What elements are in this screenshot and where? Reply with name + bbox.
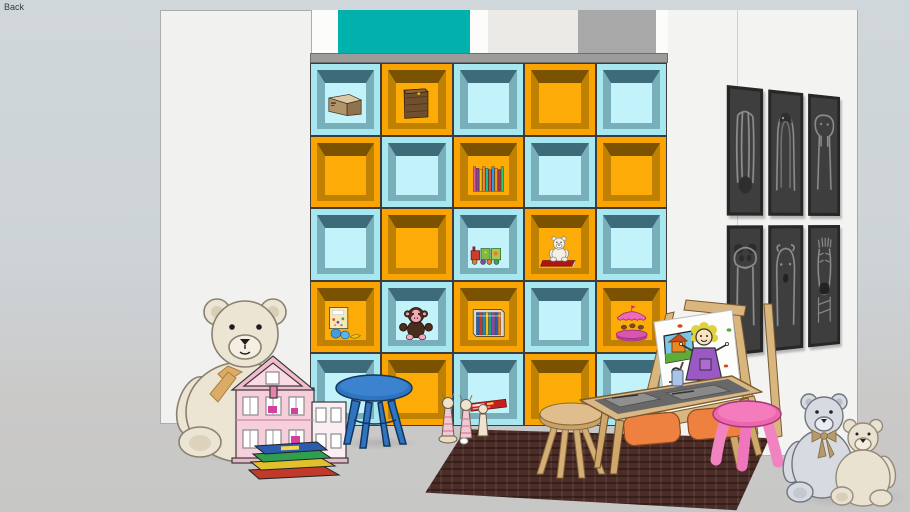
art-panel-penguin [769,89,803,215]
cubby-r3c4-orange [524,208,595,281]
cubby-opening [460,288,517,347]
toy-train [469,230,508,268]
cubby-r1c2-orange [381,63,452,136]
3d-viewport[interactable]: Back [0,0,910,512]
cardboard-box [326,85,365,123]
teal-wall-block [338,10,470,53]
lightgray-wall-block [488,10,578,53]
cubby-r1c5-cyan [596,63,667,136]
cubby-opening [388,143,445,202]
gray-wall-block [578,10,656,53]
cubby-r3c5-cyan [596,208,667,281]
art-panel-walrus [808,94,840,216]
cubby-r3c3-cyan [453,208,524,281]
book-row [469,158,508,196]
toy-pins [436,384,498,446]
cubby-opening [388,288,445,347]
cubby-opening [603,70,660,129]
cubby-r4c4-cyan [524,281,595,354]
cubby-opening [531,215,588,274]
cubby-opening [460,215,517,274]
teddy-on-book [540,230,579,268]
cubby-opening [531,70,588,129]
cubby-r2c5-orange [596,136,667,209]
cubby-opening [317,70,374,129]
wooden-crate [397,85,436,123]
art-panel-zebra [808,225,840,347]
cubby-opening [460,70,517,129]
pink-stool [708,396,786,472]
cubby-r3c2-orange [381,208,452,281]
cubby-opening [460,143,517,202]
picture-book-and-balls [326,303,365,341]
cubby-r2c3-orange [453,136,524,209]
cubby-opening [317,215,374,274]
cubby-opening [603,215,660,274]
cubby-opening [317,288,374,347]
cubby-r3c1-cyan [310,208,381,281]
cubby-opening [531,288,588,347]
book-set [469,303,508,341]
cubby-opening [388,215,445,274]
cubby-r1c1-cyan [310,63,381,136]
art-panel-giraffe [727,85,764,216]
monkey-plush [397,303,436,341]
cubby-r2c1-orange [310,136,381,209]
cubby-r4c2-cyan [381,281,452,354]
cubby-r2c4-cyan [524,136,595,209]
cubby-opening [603,143,660,202]
scene-tab-back[interactable]: Back [4,2,24,12]
cubby-r1c3-cyan [453,63,524,136]
cubby-r4c3-orange [453,281,524,354]
cubby-r1c4-orange [524,63,595,136]
book-stack [243,442,343,482]
cubby-opening [531,143,588,202]
cubby-opening [388,70,445,129]
cubby-r2c2-cyan [381,136,452,209]
blue-stool [330,372,418,450]
shelf-top-board [310,53,668,63]
wall-strip-above-shelf [312,10,668,53]
cubby-r4c1-orange [310,281,381,354]
teddy-bear-pair [778,386,910,512]
cubby-opening [317,143,374,202]
